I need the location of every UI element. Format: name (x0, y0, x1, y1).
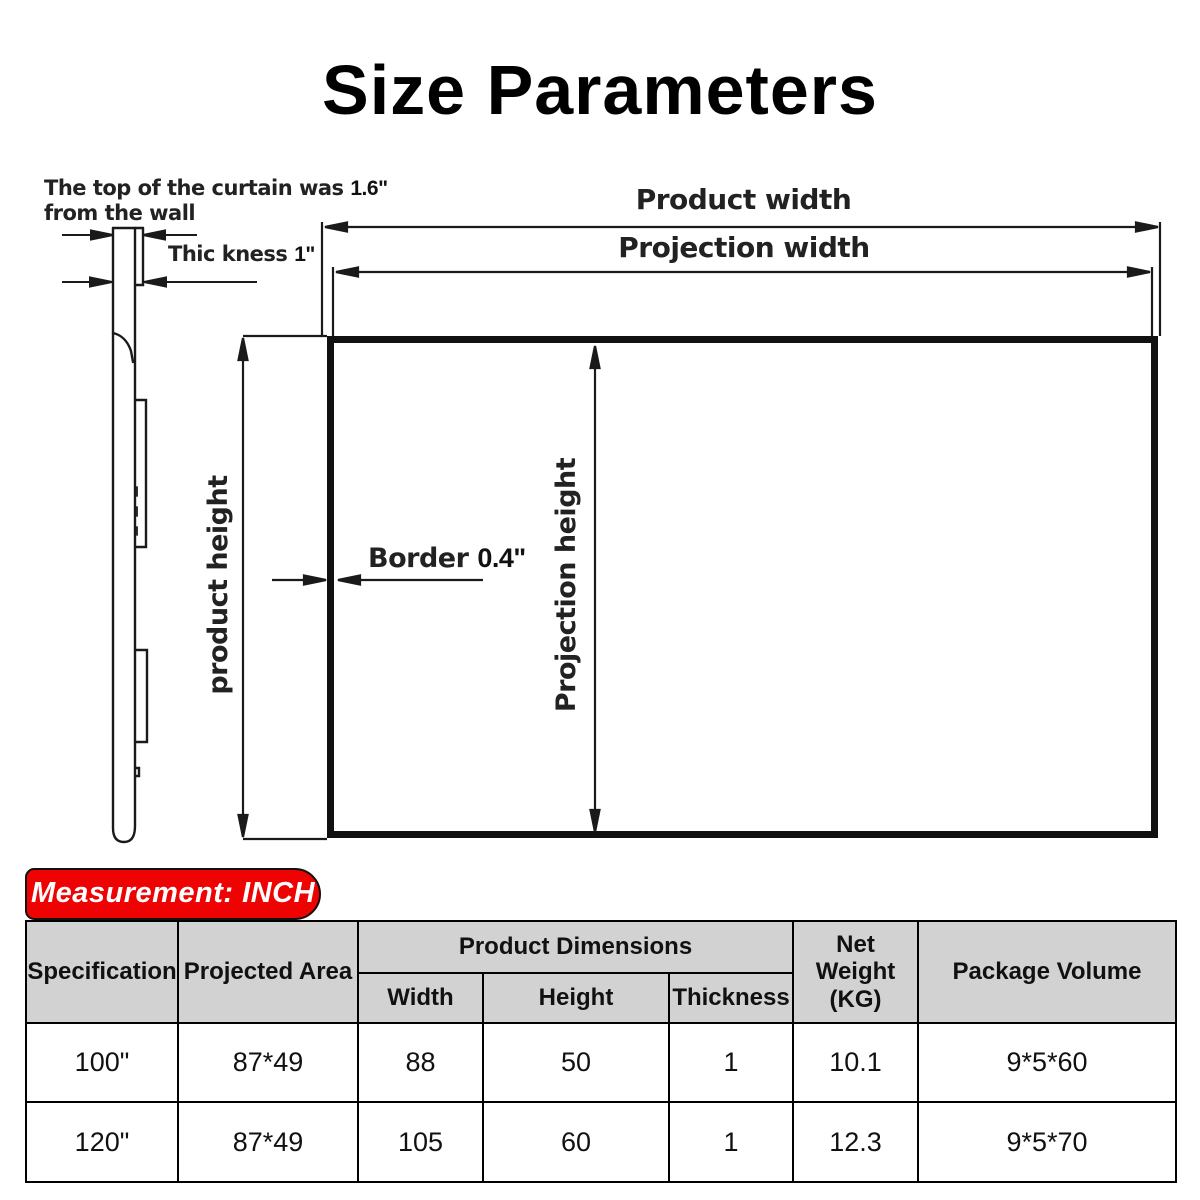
cell-thickness: 1 (669, 1023, 793, 1102)
col-header-thickness: Thickness (669, 973, 793, 1023)
thickness-dimension-arrows (62, 278, 257, 287)
col-header-projected-area: Projected Area (178, 921, 358, 1023)
cell-net-weight: 12.3 (793, 1102, 918, 1182)
cell-net-weight: 10.1 (793, 1023, 918, 1102)
cell-width: 88 (358, 1023, 483, 1102)
curtain-note-text: The top of the curtain was (44, 176, 344, 200)
col-header-width: Width (358, 973, 483, 1023)
border-label: Border 0.4" (368, 543, 526, 574)
projection-width-arrow (333, 267, 1152, 336)
dimension-diagram-svg (0, 0, 1200, 870)
cell-thickness: 1 (669, 1102, 793, 1182)
product-width-label: Product width (327, 183, 1160, 216)
col-header-package-volume: Package Volume (918, 921, 1176, 1023)
product-height-label: product height (203, 435, 235, 735)
thickness-text: Thic kness (168, 242, 287, 266)
cell-height: 60 (483, 1102, 669, 1182)
col-header-specification: Specification (26, 921, 178, 1023)
net-weight-line2: (KG) (830, 986, 882, 1013)
size-diagram: The top of the curtain was 1.6" from the… (0, 0, 1200, 870)
thickness-value: 1" (294, 243, 315, 266)
side-profile-drawing (113, 228, 147, 842)
border-text: Border (368, 543, 468, 574)
cell-width: 105 (358, 1102, 483, 1182)
col-header-product-dimensions: Product Dimensions (358, 921, 793, 973)
curtain-note-text2: from the wall (44, 201, 195, 225)
cell-height: 50 (483, 1023, 669, 1102)
table-row: 100" 87*49 88 50 1 10.1 9*5*60 (26, 1023, 1176, 1102)
product-height-arrow (239, 336, 328, 839)
thickness-label: Thic kness 1" (168, 242, 315, 267)
cell-projected-area: 87*49 (178, 1023, 358, 1102)
cell-package-volume: 9*5*70 (918, 1102, 1176, 1182)
screen-front-view (331, 340, 1155, 835)
spec-table: Specification Projected Area Product Dim… (25, 920, 1177, 1183)
projection-height-label: Projection height (551, 435, 583, 735)
measurement-badge: Measurement: INCH (25, 868, 321, 920)
cell-package-volume: 9*5*60 (918, 1023, 1176, 1102)
projection-width-label: Projection width (336, 231, 1152, 264)
cell-projected-area: 87*49 (178, 1102, 358, 1182)
table-row: 120" 87*49 105 60 1 12.3 9*5*70 (26, 1102, 1176, 1182)
col-header-height: Height (483, 973, 669, 1023)
col-header-net-weight: Net Weight (KG) (793, 921, 918, 1023)
border-value: 0.4" (477, 543, 525, 573)
net-weight-line1: Net Weight (816, 931, 896, 986)
offset-dimension-arrows (62, 231, 197, 240)
cell-specification: 120" (26, 1102, 178, 1182)
cell-specification: 100" (26, 1023, 178, 1102)
